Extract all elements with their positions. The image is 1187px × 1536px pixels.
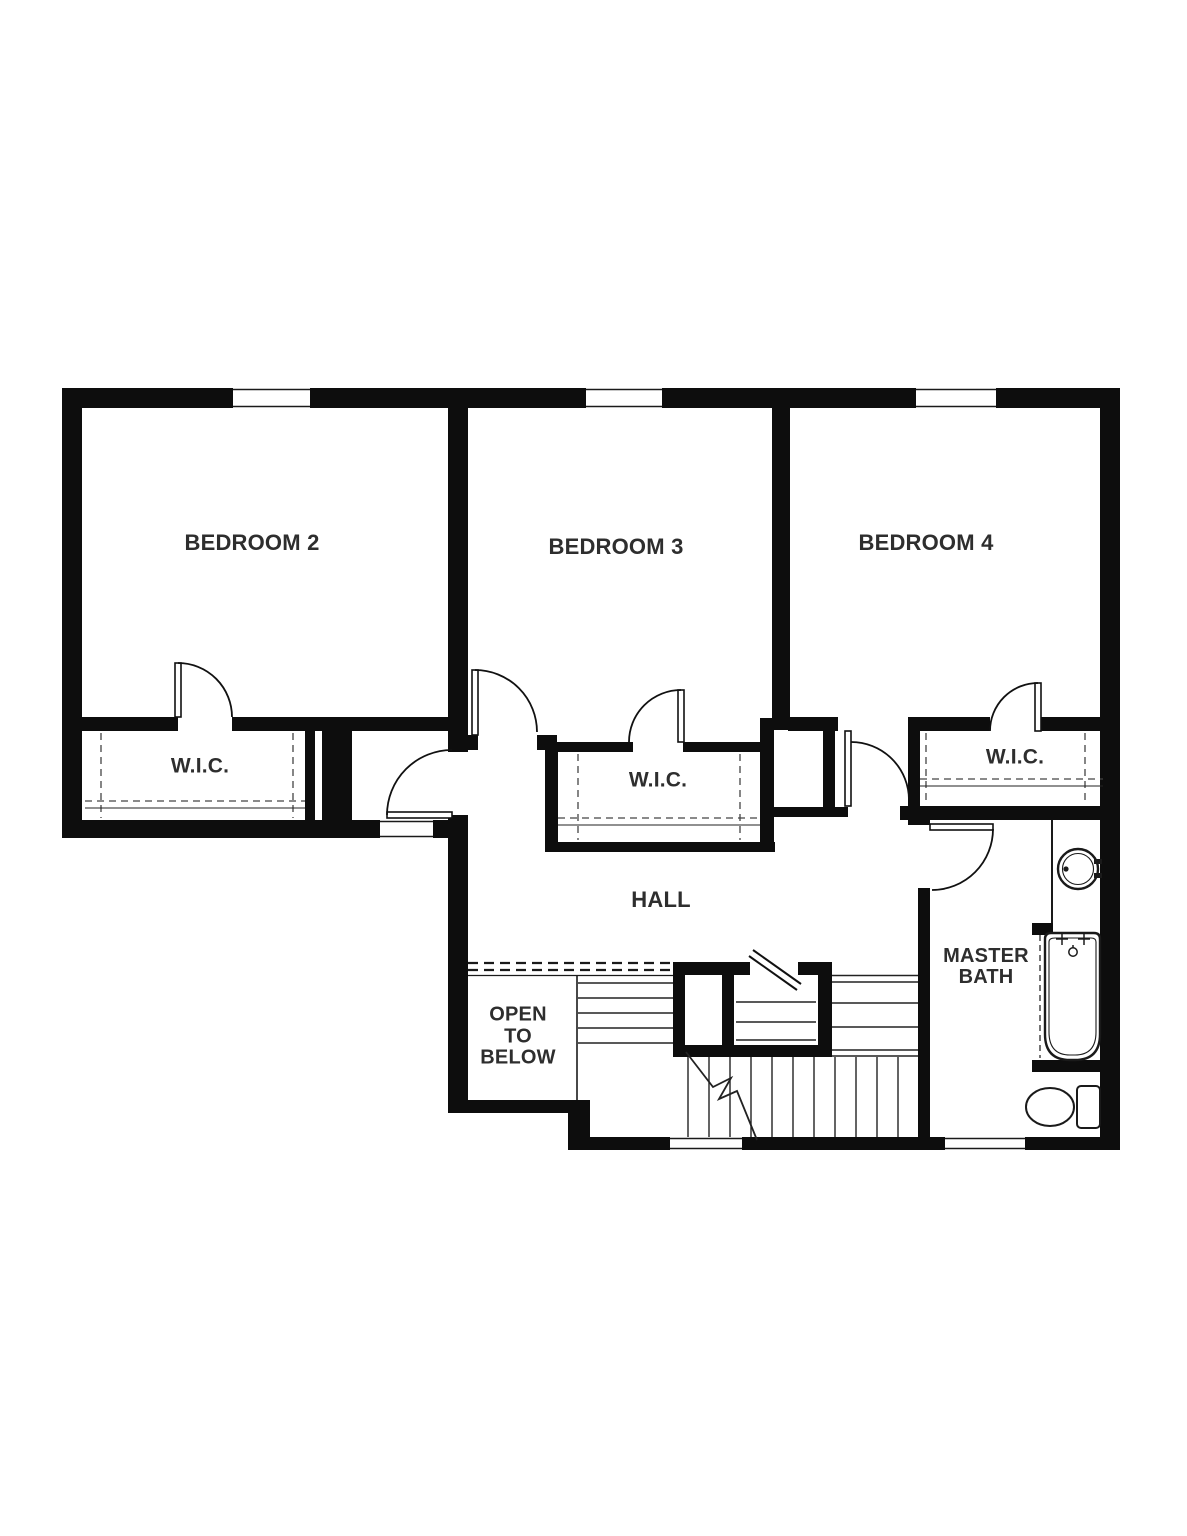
bedroom2-entry-door	[387, 750, 452, 818]
sink-icon	[1058, 849, 1102, 889]
room-label-bedroom-3: BEDROOM 3	[548, 535, 683, 559]
bedroom3-entry-door	[472, 670, 537, 735]
master-entry-door	[930, 824, 993, 890]
stair-direction-line	[686, 1052, 757, 1140]
bathtub-icon	[1040, 933, 1100, 1060]
room-label-wic-bedroom3: W.I.C.	[629, 768, 687, 791]
bedroom3-wic-door	[629, 690, 684, 742]
stairs	[578, 976, 918, 1141]
toilet-icon	[1026, 1086, 1100, 1128]
floor-plan-page: BEDROOM 2 BEDROOM 3 BEDROOM 4 W.I.C. W.I…	[0, 0, 1187, 1536]
room-label-bedroom-4: BEDROOM 4	[858, 531, 993, 555]
room-label-open-to-below: OPEN TO BELOW	[480, 1005, 555, 1070]
room-label-master-bath: MASTER BATH	[943, 946, 1029, 988]
master-bath-fixtures	[1026, 820, 1102, 1128]
bedroom4-entry-door	[845, 731, 909, 806]
room-label-wic-bedroom4: W.I.C.	[986, 745, 1044, 768]
bedroom2-wic-door	[175, 663, 232, 717]
room-label-wic-bedroom2: W.I.C.	[171, 754, 229, 777]
room-label-bedroom-2: BEDROOM 2	[184, 531, 319, 555]
bedroom4-wic-door	[990, 683, 1041, 731]
stair-closet-door	[749, 950, 801, 990]
room-label-hall: HALL	[631, 888, 690, 912]
